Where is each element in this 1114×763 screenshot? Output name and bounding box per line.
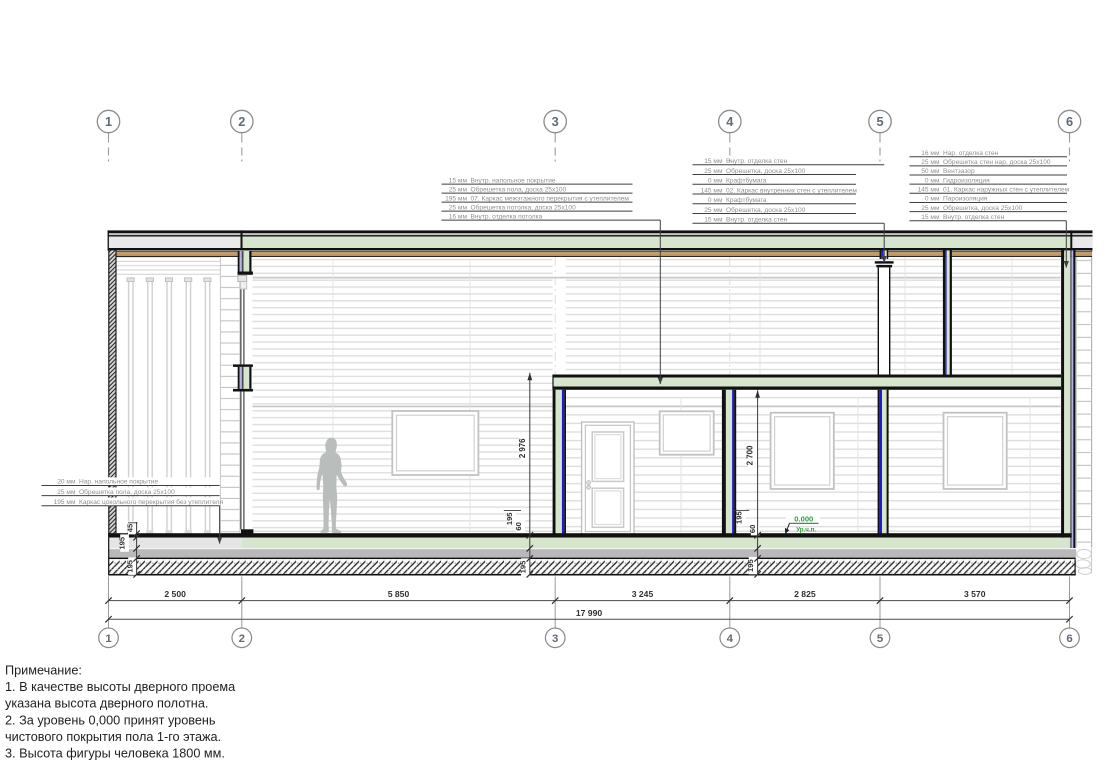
svg-text:45: 45 — [125, 523, 134, 532]
svg-text:1: 1 — [105, 114, 112, 129]
svg-text:145 мм: 145 мм — [918, 187, 940, 194]
svg-text:60: 60 — [748, 525, 757, 533]
svg-text:25 мм: 25 мм — [704, 168, 723, 175]
svg-text:25 мм: 25 мм — [921, 205, 940, 212]
svg-text:0 мм: 0 мм — [925, 196, 940, 203]
svg-text:2: 2 — [239, 633, 245, 645]
svg-text:15 мм: 15 мм — [449, 177, 468, 184]
svg-text:чистового покрытия пола 1-го э: чистового покрытия пола 1-го этажа. — [5, 730, 221, 744]
svg-text:2: 2 — [238, 114, 245, 129]
svg-text:0 мм: 0 мм — [708, 178, 723, 185]
svg-text:1: 1 — [105, 633, 112, 645]
svg-text:Обрешетка потолка, доска 25х10: Обрешетка потолка, доска 25х100 — [471, 203, 577, 211]
svg-text:195 мм: 195 мм — [54, 499, 76, 506]
svg-text:Обрешетка, доска 25х100: Обрешетка, доска 25х100 — [726, 167, 806, 175]
svg-text:2 500: 2 500 — [164, 589, 186, 599]
svg-text:5 850: 5 850 — [388, 589, 410, 599]
svg-text:195: 195 — [505, 512, 514, 525]
svg-text:Гидроизоляция: Гидроизоляция — [943, 177, 990, 184]
svg-text:25 мм: 25 мм — [57, 489, 76, 496]
svg-text:16 мм: 16 мм — [449, 213, 468, 220]
svg-text:0 мм: 0 мм — [708, 197, 723, 204]
svg-text:1. В качестве высоты дверного: 1. В качестве высоты дверного проема — [5, 680, 236, 694]
svg-text:указана высота дверного полотн: указана высота дверного полотна. — [5, 697, 208, 711]
svg-text:25 мм: 25 мм — [449, 186, 468, 193]
svg-text:Обрешетка, доска 25х100: Обрешетка, доска 25х100 — [726, 206, 806, 214]
svg-text:6: 6 — [1066, 633, 1072, 645]
svg-text:195: 195 — [518, 560, 527, 573]
svg-text:16 мм: 16 мм — [921, 150, 940, 157]
svg-text:Крафтбумага: Крафтбумага — [726, 177, 767, 185]
svg-text:Вентзазор: Вентзазор — [943, 168, 975, 175]
svg-text:25 мм: 25 мм — [704, 207, 723, 214]
svg-text:Ур.ч.п.: Ур.ч.п. — [796, 526, 816, 533]
svg-text:Внутр. отделка стен: Внутр. отделка стен — [943, 214, 1005, 221]
svg-text:17 990: 17 990 — [576, 608, 603, 618]
svg-text:Внутр. отделка стен: Внутр. отделка стен — [726, 158, 788, 165]
svg-text:195: 195 — [735, 510, 744, 523]
svg-text:Нар. отделка стен: Нар. отделка стен — [943, 150, 999, 157]
svg-text:195: 195 — [118, 536, 127, 549]
svg-text:145 мм: 145 мм — [701, 187, 723, 194]
svg-text:195: 195 — [746, 558, 755, 571]
svg-text:02. Каркас внутренних стен с у: 02. Каркас внутренних стен с утеплителем — [726, 187, 857, 194]
svg-text:6: 6 — [1066, 114, 1073, 129]
svg-text:2 976: 2 976 — [518, 438, 527, 458]
svg-text:0.000: 0.000 — [794, 514, 813, 523]
svg-text:60: 60 — [514, 522, 523, 530]
svg-text:Обрешетка пола, доска 25х100: Обрешетка пола, доска 25х100 — [79, 488, 175, 496]
svg-text:5: 5 — [876, 114, 883, 129]
svg-text:15 мм: 15 мм — [921, 214, 940, 221]
svg-text:3. Высота фигуры человека 1800: 3. Высота фигуры человека 1800 мм. — [5, 747, 225, 761]
svg-text:07. Каркас межэтажного перекры: 07. Каркас межэтажного перекрытия с утеп… — [471, 195, 630, 202]
svg-text:Внутр. отделка стен: Внутр. отделка стен — [726, 217, 788, 224]
svg-text:2 700: 2 700 — [746, 445, 755, 465]
svg-text:3: 3 — [552, 633, 558, 645]
svg-text:Крафтбумага: Крафтбумага — [726, 196, 767, 204]
svg-text:3 570: 3 570 — [964, 589, 986, 599]
svg-text:01. Каркас наружных стен с уте: 01. Каркас наружных стен с утеплителем — [943, 187, 1070, 194]
svg-text:Обрешетка пола, доска 25х100: Обрешетка пола, доска 25х100 — [471, 185, 567, 193]
svg-text:4: 4 — [726, 114, 734, 129]
svg-text:2 825: 2 825 — [794, 589, 816, 599]
svg-text:20 мм: 20 мм — [57, 479, 76, 486]
svg-text:2. За уровень 0,000 принят уро: 2. За уровень 0,000 принят уровень — [5, 713, 216, 727]
svg-text:Примечание:: Примечание: — [5, 664, 82, 678]
svg-text:5: 5 — [877, 633, 884, 645]
svg-text:Внутр. напольное покрытие: Внутр. напольное покрытие — [471, 177, 556, 184]
svg-text:50 мм: 50 мм — [921, 168, 940, 175]
svg-text:Внутр. отделка потолка: Внутр. отделка потолка — [471, 213, 543, 220]
svg-text:3 245: 3 245 — [632, 589, 654, 599]
svg-text:Обрешетка, доска 25х100: Обрешетка, доска 25х100 — [943, 204, 1023, 212]
svg-text:Нар. напольное покрытие: Нар. напольное покрытие — [79, 479, 158, 486]
svg-text:0 мм: 0 мм — [925, 177, 940, 184]
svg-text:25 мм: 25 мм — [921, 159, 940, 166]
svg-text:Пароизоляция: Пароизоляция — [943, 196, 988, 203]
svg-text:25 мм: 25 мм — [449, 204, 468, 211]
svg-text:3: 3 — [552, 114, 559, 129]
svg-text:15 мм: 15 мм — [704, 217, 723, 224]
svg-text:195: 195 — [126, 559, 135, 572]
svg-text:Каркас цокольного перекрытия б: Каркас цокольного перекрытия без утеплит… — [79, 498, 224, 506]
svg-text:Обрешетка стен нар, доска 25х1: Обрешетка стен нар, доска 25х100 — [943, 158, 1051, 166]
svg-text:195 мм: 195 мм — [445, 195, 467, 202]
svg-text:4: 4 — [727, 633, 734, 645]
svg-text:15 мм: 15 мм — [704, 158, 723, 165]
